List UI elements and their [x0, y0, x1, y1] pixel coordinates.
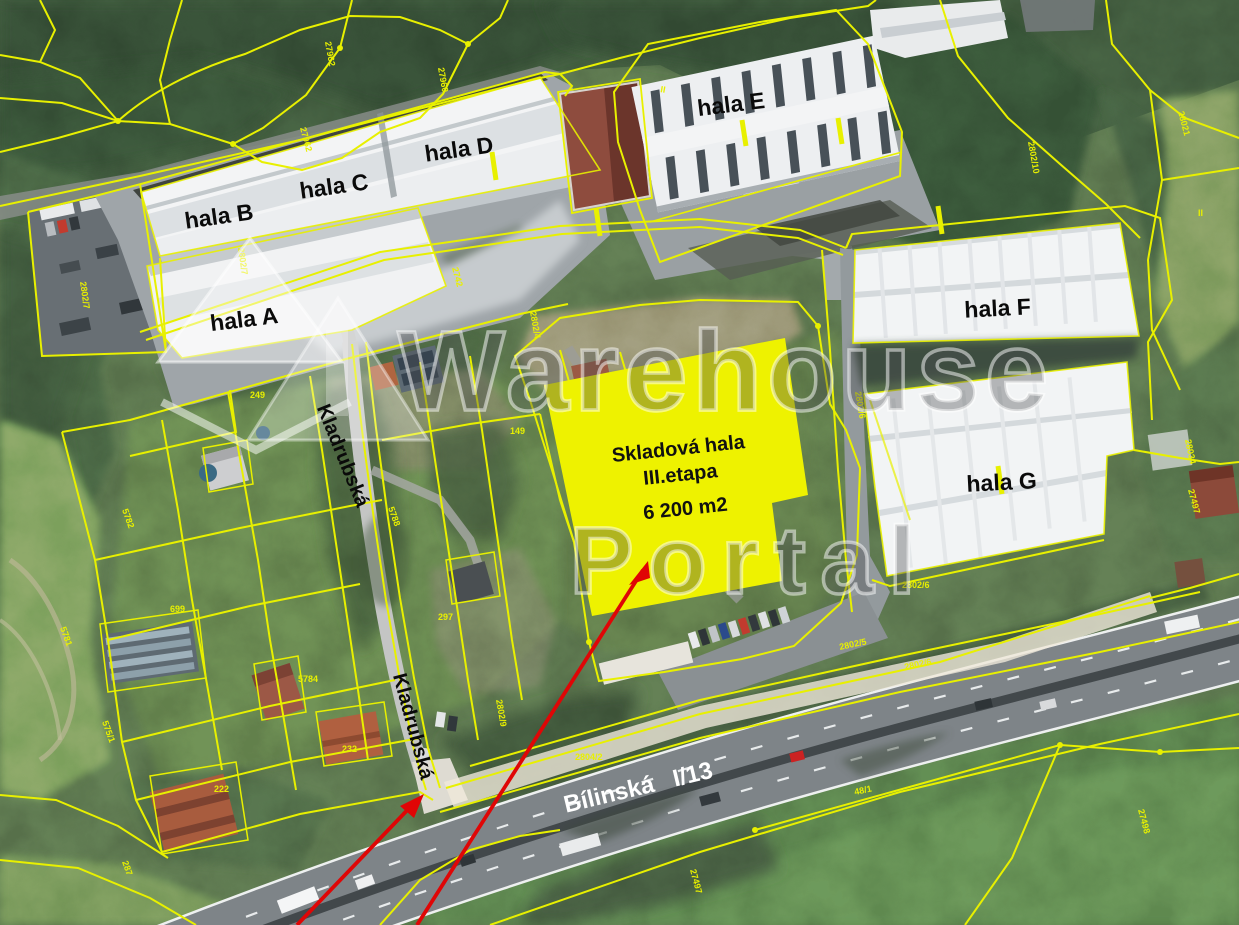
svg-text:Portal: Portal — [570, 508, 915, 614]
svg-text:297: 297 — [438, 612, 453, 622]
svg-text:hala G: hala G — [966, 467, 1038, 497]
svg-text:5784: 5784 — [298, 674, 318, 684]
svg-text:2804/2: 2804/2 — [575, 752, 603, 762]
svg-text:222: 222 — [214, 784, 229, 794]
svg-text:249: 249 — [250, 390, 265, 400]
svg-text:hala F: hala F — [964, 293, 1032, 322]
svg-text:232: 232 — [342, 744, 357, 754]
svg-text:Warehouse: Warehouse — [398, 308, 1048, 434]
svg-text:699: 699 — [170, 604, 185, 614]
svg-text:II: II — [1198, 208, 1203, 218]
